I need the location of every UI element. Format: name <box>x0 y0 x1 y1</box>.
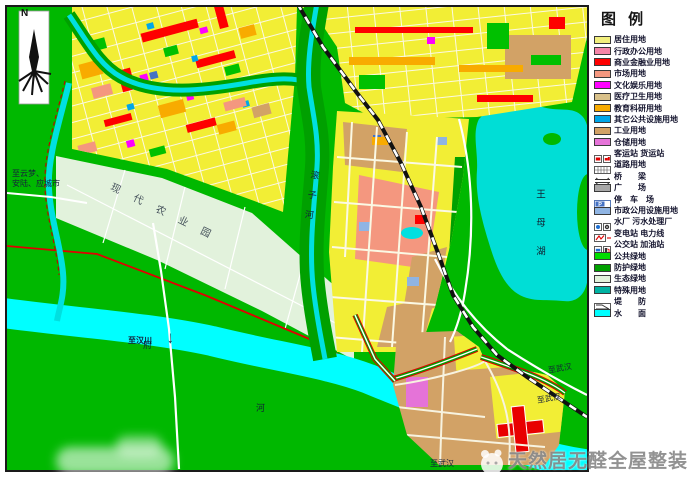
legend-item: 变电站 电力线 <box>594 228 686 239</box>
legend-swatch-public-facility <box>594 115 611 123</box>
label-wangmu-lake: 王母湖 <box>534 189 544 275</box>
legend-item: 行政办公用地 <box>594 45 686 56</box>
legend-label: 文化娱乐用地 <box>614 80 662 91</box>
legend-label: 生态绿地 <box>614 273 646 284</box>
blurred-watermark-patch-2 <box>116 436 162 456</box>
label-fu-river-char1: 府 <box>143 340 152 350</box>
legend-label: 教育科研用地 <box>614 103 662 114</box>
legend-item: P 停 车 场 <box>594 193 686 204</box>
legend-swatch-market <box>594 70 611 78</box>
legend-swatch-protective-green <box>594 264 611 272</box>
legend-item: 市场用地 <box>594 68 686 79</box>
legend-label: 桥 梁 <box>614 171 646 182</box>
legend-swatch-industry <box>594 127 611 135</box>
legend-label: 公交站 加油站 <box>614 239 664 250</box>
legend-item: 桥 梁 <box>594 171 686 182</box>
legend-label: 医疗卫生用地 <box>614 91 662 102</box>
legend-item: 客运站 货运站 <box>594 148 686 159</box>
label-fu-river-char2: 河 <box>256 403 265 413</box>
legend-swatch-admin <box>594 47 611 55</box>
label-to-yunmeng: 至云梦、 安陆、应城市 <box>12 169 60 189</box>
legend-swatch-commercial <box>594 58 611 66</box>
legend-label: 工业用地 <box>614 125 646 136</box>
legend-label: 仓储用地 <box>614 137 646 148</box>
planning-map-page: N 至云梦、 安陆、应城市 至汉川 ↓ 府 河 滚子河 王母湖 至武汉 至武汉 … <box>0 0 687 481</box>
legend-label: 行政办公用地 <box>614 46 662 57</box>
legend-item: 教育科研用地 <box>594 102 686 113</box>
legend-item: 公交站 加油站 <box>594 239 686 250</box>
legend-label: 公共绿地 <box>614 251 646 262</box>
legend-item: 防护绿地 <box>594 262 686 273</box>
legend-title: 图 例 <box>601 8 686 29</box>
legend-item: 文化娱乐用地 <box>594 80 686 91</box>
legend-item: 堤 防 <box>594 296 686 307</box>
legend-item: 水 面 <box>594 307 686 318</box>
watermark-text: 天然居无醛全屋整装 <box>508 446 687 473</box>
hanchuan-arrow: ↓ <box>167 332 174 345</box>
legend-swatch-special <box>594 286 611 294</box>
legend-item: 其它公共设施用地 <box>594 114 686 125</box>
legend-item: 道路用地 <box>594 159 686 170</box>
legend-label: 防护绿地 <box>614 262 646 273</box>
legend-panel: 图 例 居住用地 行政办公用地 商业金融业用地 市场用地 文化娱乐用地 医疗卫生… <box>594 6 686 319</box>
watermark-logo <box>474 444 506 476</box>
legend-swatch-culture <box>594 81 611 89</box>
compass-rose <box>19 11 51 104</box>
legend-swatch-residential <box>594 36 611 44</box>
legend-swatch-public-green <box>594 252 611 260</box>
north-label: N <box>21 9 28 19</box>
legend-swatch-warehouse <box>594 138 611 146</box>
legend-item: 商业金融业用地 <box>594 57 686 68</box>
legend-label: 市场用地 <box>614 68 646 79</box>
legend-item: 特殊用地 <box>594 285 686 296</box>
legend-label: 市政公用设施用地 <box>614 205 678 216</box>
legend-label: 停 车 场 <box>614 194 654 205</box>
legend-label: 水 面 <box>614 308 646 319</box>
label-to-wuhan-3: 至武汉 <box>430 459 454 469</box>
legend-item: 居住用地 <box>594 34 686 45</box>
legend-item: 水厂 污水处理厂 <box>594 216 686 227</box>
legend-item: 医疗卫生用地 <box>594 91 686 102</box>
legend-label: 堤 防 <box>614 296 646 307</box>
legend-item: 市政公用设施用地 <box>594 205 686 216</box>
map-frame: N 至云梦、 安陆、应城市 至汉川 ↓ 府 河 滚子河 王母湖 至武汉 至武汉 … <box>5 5 589 472</box>
legend-label: 广 场 <box>614 182 646 193</box>
legend-label: 道路用地 <box>614 159 646 170</box>
legend-label: 变电站 电力线 <box>614 228 664 239</box>
legend-swatch-eco-green <box>594 275 611 283</box>
legend-label: 客运站 货运站 <box>614 148 664 159</box>
legend-label: 其它公共设施用地 <box>614 114 678 125</box>
legend-label: 特殊用地 <box>614 285 646 296</box>
legend-swatch-education <box>594 104 611 112</box>
legend-label: 商业金融业用地 <box>614 57 670 68</box>
legend-swatch-plaza <box>594 184 611 192</box>
legend-item: 工业用地 <box>594 125 686 136</box>
legend-item: 公共绿地 <box>594 250 686 261</box>
legend-item: 生态绿地 <box>594 273 686 284</box>
legend-item: 仓储用地 <box>594 137 686 148</box>
legend-swatch-municipal <box>594 207 611 215</box>
land-use-map <box>7 7 587 470</box>
legend-item: 广 场 <box>594 182 686 193</box>
legend-swatch-medical <box>594 93 611 101</box>
legend-label: 水厂 污水处理厂 <box>614 216 672 227</box>
legend-swatch-water <box>594 309 611 317</box>
legend-label: 居住用地 <box>614 34 646 45</box>
